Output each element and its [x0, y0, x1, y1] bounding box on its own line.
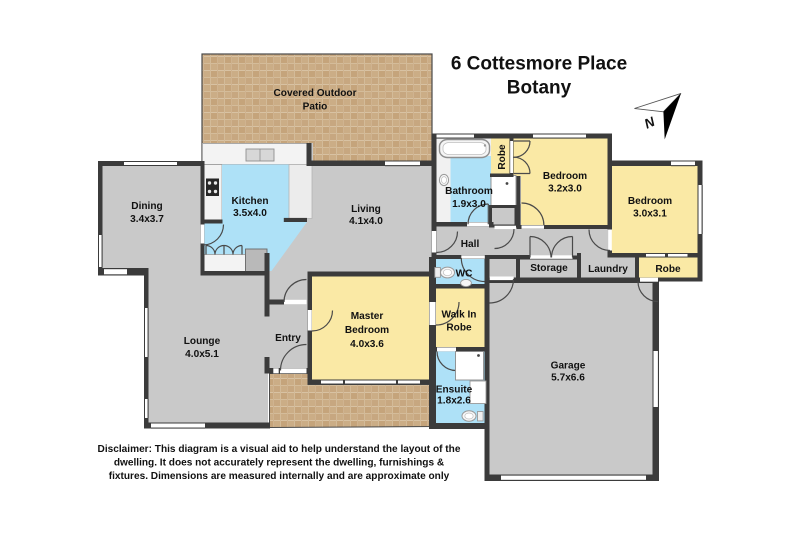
svg-text:Bedroom: Bedroom [345, 325, 389, 336]
svg-text:4.0x3.6: 4.0x3.6 [350, 339, 384, 350]
svg-text:Storage: Storage [530, 263, 568, 274]
svg-text:Lounge: Lounge [184, 336, 221, 347]
svg-text:Entry: Entry [275, 333, 301, 344]
svg-text:Botany: Botany [507, 78, 572, 99]
svg-text:dwelling. It does not accurate: dwelling. It does not accurately represe… [114, 458, 444, 469]
svg-text:Walk In: Walk In [442, 310, 477, 321]
svg-text:3.4x3.7: 3.4x3.7 [130, 214, 164, 225]
svg-text:Ensuite: Ensuite [436, 385, 473, 396]
svg-text:Robe: Robe [446, 323, 472, 334]
svg-text:3.0x3.1: 3.0x3.1 [633, 209, 667, 220]
svg-text:Living: Living [351, 204, 381, 215]
svg-text:4.1x4.0: 4.1x4.0 [349, 216, 383, 227]
svg-text:Bathroom: Bathroom [445, 186, 493, 197]
svg-text:Garage: Garage [551, 361, 586, 372]
svg-text:Patio: Patio [303, 102, 328, 113]
svg-text:1.8x2.6: 1.8x2.6 [437, 396, 471, 407]
svg-text:Bedroom: Bedroom [543, 171, 587, 182]
svg-text:Kitchen: Kitchen [231, 196, 268, 207]
svg-text:Master: Master [351, 311, 384, 322]
svg-text:Robe: Robe [497, 144, 508, 170]
svg-text:Dining: Dining [131, 201, 162, 212]
svg-text:4.0x5.1: 4.0x5.1 [185, 349, 219, 360]
svg-text:3.5x4.0: 3.5x4.0 [233, 208, 267, 219]
svg-text:fixtures. Dimensions are measu: fixtures. Dimensions are measured intern… [109, 471, 450, 482]
svg-text:Covered Outdoor: Covered Outdoor [274, 88, 357, 99]
svg-text:Bedroom: Bedroom [628, 196, 672, 207]
svg-text:3.2x3.0: 3.2x3.0 [548, 184, 582, 195]
svg-text:6 Cottesmore Place: 6 Cottesmore Place [451, 54, 627, 75]
svg-text:1.9x3.0: 1.9x3.0 [452, 199, 486, 210]
svg-text:Robe: Robe [655, 264, 681, 275]
svg-text:5.7x6.6: 5.7x6.6 [551, 373, 585, 384]
svg-text:Hall: Hall [461, 239, 480, 250]
svg-text:Disclaimer: This diagram is a: Disclaimer: This diagram is a visual aid… [98, 444, 461, 455]
svg-text:WC: WC [456, 269, 474, 280]
svg-text:Laundry: Laundry [588, 264, 628, 275]
